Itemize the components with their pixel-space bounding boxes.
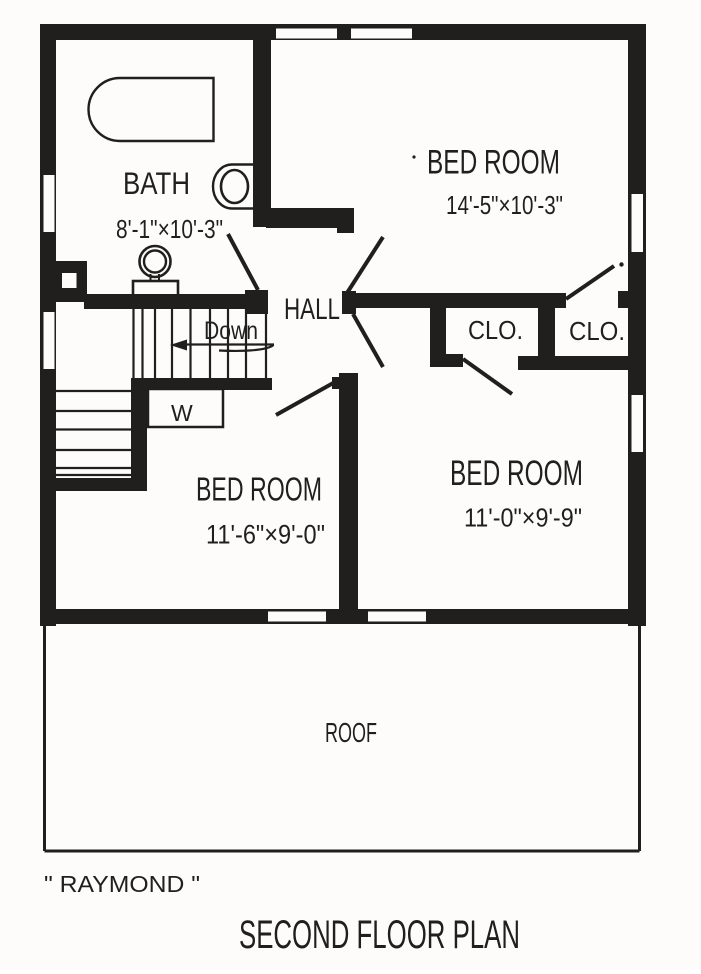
svg-text:CLO.: CLO. [468, 315, 523, 345]
svg-text:14'-5"×10'-3": 14'-5"×10'-3" [446, 190, 563, 220]
svg-text:BED ROOM: BED ROOM [450, 453, 583, 493]
svg-text:11'-0"×9'-9": 11'-0"×9'-9" [464, 503, 582, 533]
svg-text:SECOND FLOOR PLAN: SECOND FLOOR PLAN [239, 913, 520, 957]
svg-text:CLO.: CLO. [569, 316, 625, 346]
svg-text:BATH: BATH [123, 165, 190, 201]
svg-text:11'-6"×9'-0": 11'-6"×9'-0" [206, 520, 325, 550]
svg-text:Down: Down [204, 317, 258, 345]
svg-text:ROOF: ROOF [325, 717, 377, 748]
svg-text:BED ROOM: BED ROOM [427, 144, 560, 182]
svg-text:" RAYMOND ": " RAYMOND " [44, 871, 200, 897]
svg-text:W: W [171, 400, 193, 426]
svg-text:8'-1"×10'-3": 8'-1"×10'-3" [116, 214, 223, 244]
svg-text:BED ROOM: BED ROOM [196, 471, 322, 508]
svg-text:HALL: HALL [284, 293, 340, 326]
